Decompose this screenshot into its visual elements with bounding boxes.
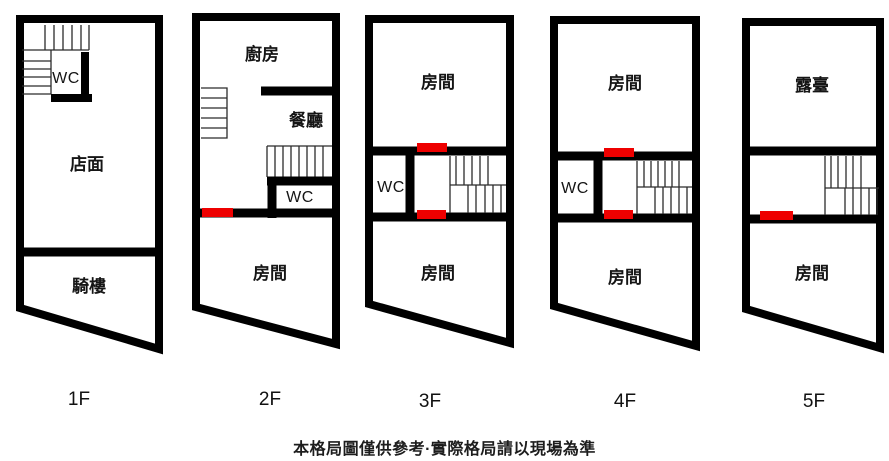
room-label-wc: WC [561,180,589,197]
floor-plan-2f: 廚房 餐廳 WC 房間 2F [194,17,338,410]
disclaimer-caption: 本格局圖僅供參考·實際格局請以現場為準 [0,435,889,459]
door-marker [760,211,793,220]
floor-label-3f: 3F [419,391,441,412]
floor-label-5f: 5F [803,391,825,412]
door-marker [417,143,447,152]
room-label-terrace: 露臺 [795,75,829,95]
door-marker [417,210,446,219]
floor-plan-4f: 房間 WC 房間 4F [551,20,699,412]
floor-plan-diagram: WC 店面 騎樓 1F 廚房 餐廳 WC 房間 2F 房間 WC 房間 3F [0,0,889,461]
room-label-wc: WC [377,179,405,196]
door-marker [604,210,633,219]
floor-label-1f: 1F [68,389,90,410]
floor-plan-1f: WC 店面 騎樓 1F [17,19,162,410]
room-label-wc: WC [286,189,314,206]
floor-plan-3f: 房間 WC 房間 3F [367,19,513,412]
door-marker [604,148,634,157]
room-label-dining: 餐廳 [289,110,323,130]
outer-wall [746,22,880,348]
room-label-room-bottom: 房間 [608,267,642,287]
room-label-kitchen: 廚房 [245,44,279,64]
door-marker [202,208,233,217]
room-label-bedroom: 房間 [795,263,829,283]
room-label-bedroom: 房間 [253,263,287,283]
room-label-wc: WC [52,70,80,87]
floor-plan-5f: 露臺 房間 5F [743,22,883,412]
room-label-storefront: 店面 [70,154,104,174]
room-label-arcade: 騎樓 [72,276,106,296]
floor-label-4f: 4F [614,391,636,412]
room-label-room-top: 房間 [608,73,642,93]
room-label-room-bottom: 房間 [421,263,455,283]
floor-label-2f: 2F [259,389,281,410]
room-label-room-top: 房間 [421,72,455,92]
